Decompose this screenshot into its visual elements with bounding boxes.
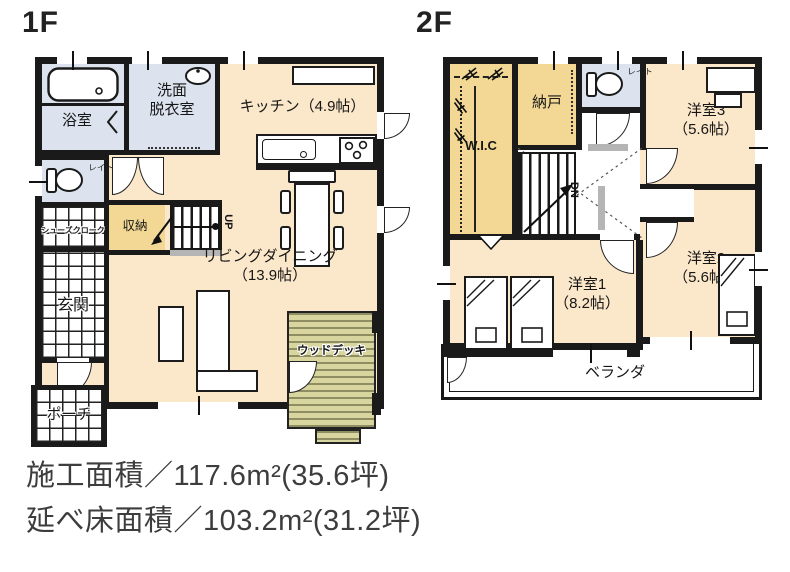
chair [280,190,291,214]
window [57,57,87,64]
window [602,57,632,64]
kitchen-cabinet [292,66,375,85]
window [755,252,762,286]
window [158,402,238,409]
exterior-door-arc [384,113,410,139]
washroom-label: 洗面 脱衣室 [129,82,215,120]
wall-stub [372,311,381,333]
stair-rail-dot [212,223,219,230]
stair-rail-line [174,226,216,228]
window [132,57,162,64]
stove-icon [339,137,375,164]
toilet-1f-label: トイレ [88,163,114,172]
floorplan-page: 1F 浴室 洗面 脱衣室 キッチン（4.9帖） [0,0,790,572]
total-floor-area-text: 延べ床面積／103.2m²(31.2坪) [26,497,421,539]
bathtub-icon [47,67,119,102]
stairs-dn-label: DN [566,175,580,205]
stair-rail [598,186,605,230]
room3-label: 洋室3 （5.6帖） [650,102,762,140]
wall [109,250,170,255]
construction-area-text: 施工面積／117.6m²(35.6坪) [26,452,390,494]
bath-partition [42,103,124,106]
bath-label: 浴室 [42,112,112,131]
sofa-icon [196,290,230,372]
window [228,57,258,64]
wall [215,64,220,155]
stair-arrow-up [146,214,174,250]
wood-deck-label: ウッドデッキ [287,344,376,358]
toilet-icon [586,69,624,100]
sofa-icon [196,370,258,392]
veranda-label: ベランダ [555,364,675,383]
window [553,350,627,357]
living-label: リビングダイニング （13.9帖） [170,248,370,286]
hanger-icon [454,96,469,116]
stair-rail [588,144,628,151]
kitchen-label: キッチン（4.9帖） [225,98,380,117]
closet-nook [640,189,694,217]
window [35,166,42,196]
opening-dotted [148,147,200,149]
toilet-icon [46,165,84,196]
chair [333,190,344,214]
floor1-title: 1F [22,6,59,40]
chair [280,226,291,250]
closet-door-mark [478,235,504,251]
bed-icon [510,276,554,350]
hanger-icon [485,66,505,81]
deck-step [315,429,361,444]
storeroom-label: 納戸 [518,94,576,113]
shoes-closet-label: シューズクローク [33,226,113,236]
hanger-icon [459,66,479,81]
kitchen-sink-icon [262,139,316,160]
closet-divider [474,86,476,232]
door-opening [377,112,384,139]
window [538,57,568,64]
floor2-title: 2F [416,6,453,40]
porch-label: ポーチ [36,406,102,425]
wic-label: W.I.C [450,138,512,154]
window [667,57,697,64]
window [650,337,730,344]
wall [104,155,109,409]
wall [640,64,646,150]
coffee-table-icon [158,306,184,362]
bed-icon [718,254,756,336]
folding-door-icon [107,110,118,134]
wall [694,184,760,190]
opening-dotted [571,70,573,134]
window [443,266,450,300]
door-opening [377,206,384,233]
chair [333,226,344,250]
desk-icon [706,67,756,93]
desk-chair-icon [714,93,742,108]
faucet-icon [300,151,307,158]
window [755,130,762,164]
stairs-up-label: UP [220,207,234,237]
entrance-label: 玄関 [42,296,104,316]
bed-icon [464,276,508,350]
exterior-door-arc [384,207,410,233]
wall-stub [372,393,381,415]
dining-counter [288,170,336,183]
